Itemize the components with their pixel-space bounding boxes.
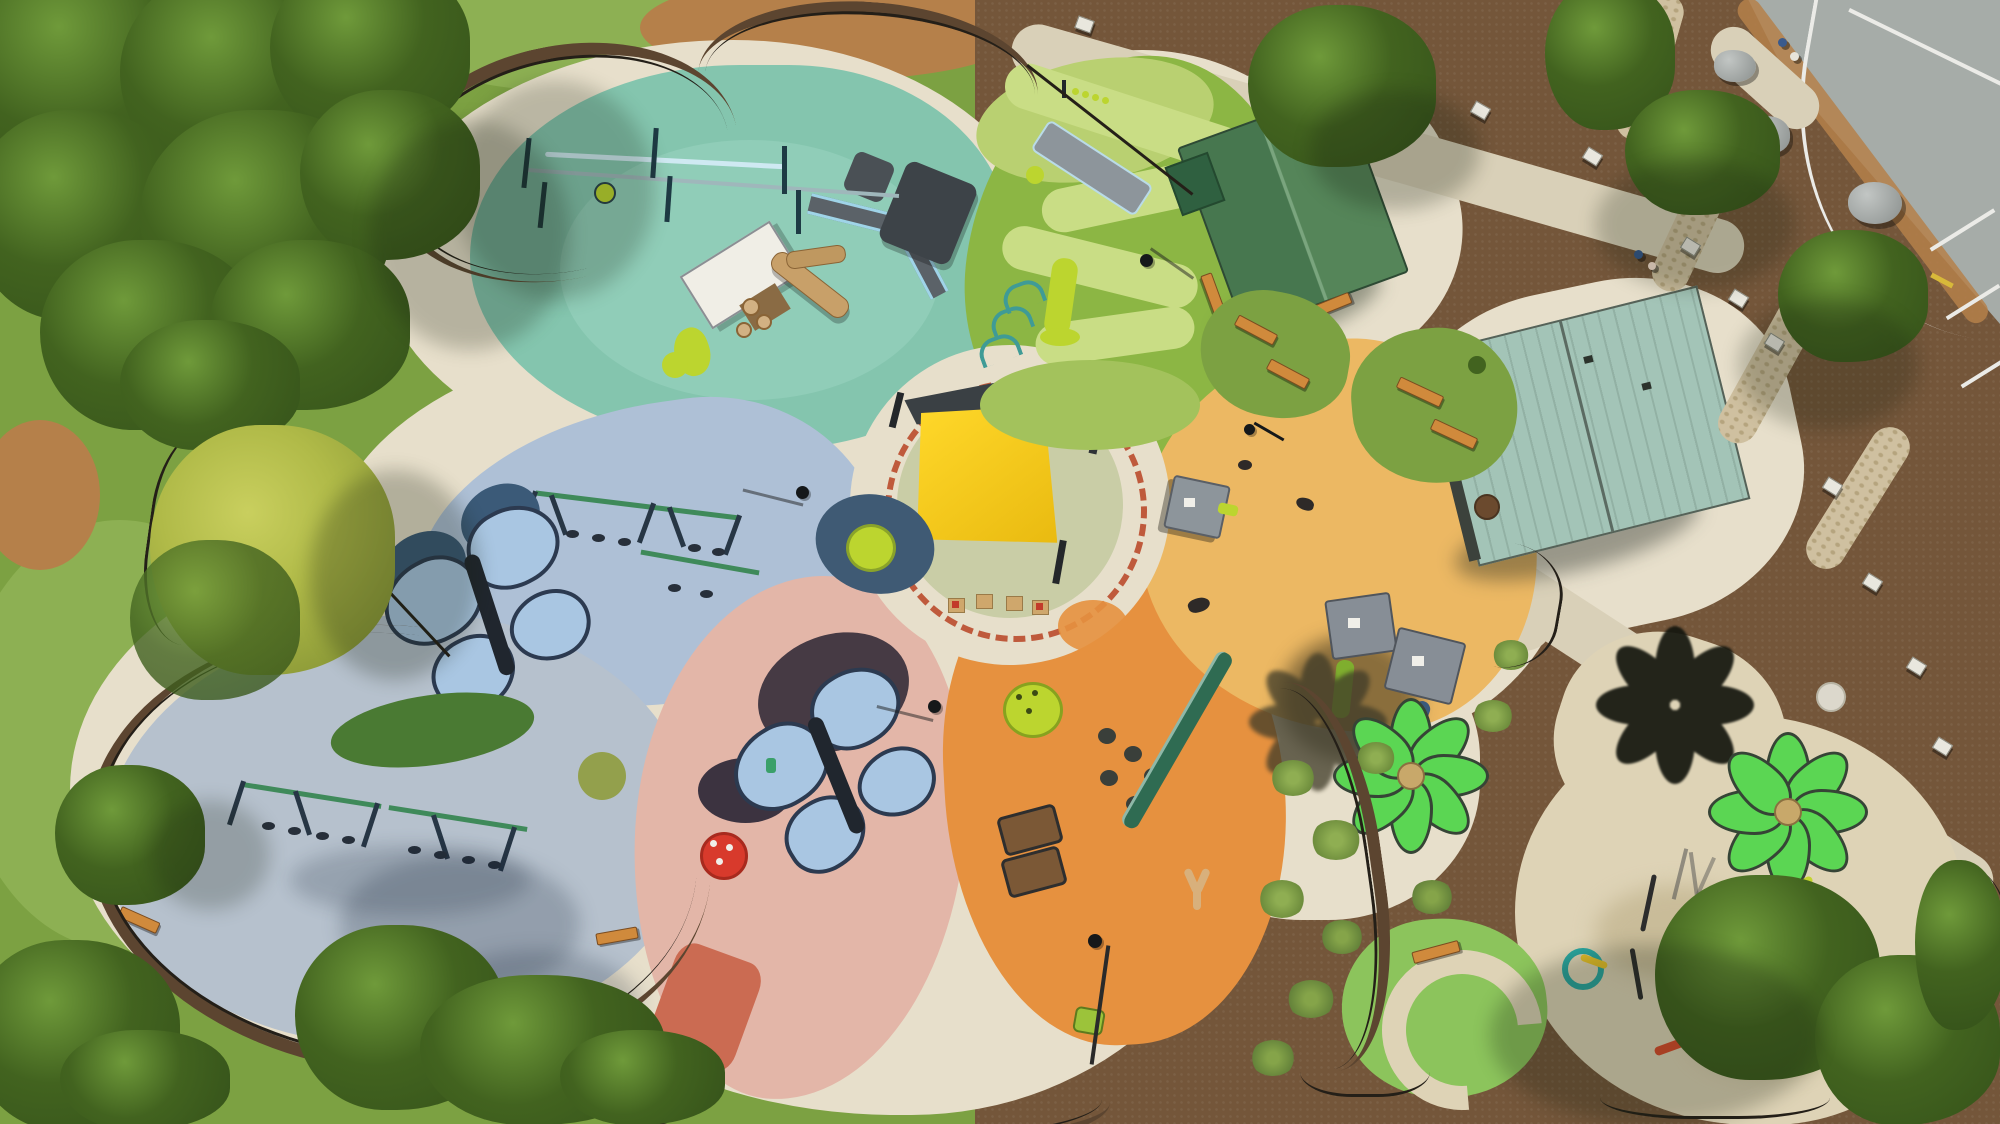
grass-tuft bbox=[1356, 742, 1396, 774]
person bbox=[1778, 38, 1787, 47]
zipline-post bbox=[782, 146, 787, 194]
small-figure bbox=[766, 758, 776, 773]
tree bbox=[560, 1030, 725, 1124]
ball bbox=[1092, 94, 1099, 101]
log-stump bbox=[742, 298, 760, 316]
tree-canopy-shadow bbox=[1595, 160, 1795, 290]
flower-center bbox=[1774, 798, 1802, 826]
lime-slide-exit bbox=[1040, 328, 1080, 346]
swing-seat bbox=[700, 590, 713, 598]
ball bbox=[1102, 97, 1109, 104]
sapling bbox=[1468, 356, 1486, 374]
mushroom-dot bbox=[726, 844, 733, 851]
mound-light-lobe bbox=[980, 360, 1200, 450]
ball bbox=[1082, 91, 1089, 98]
tree-canopy-shadow bbox=[1738, 300, 1918, 430]
mushroom-dot bbox=[710, 840, 717, 847]
aerial-playground-photo bbox=[0, 0, 2000, 1124]
playhouse-window bbox=[1184, 498, 1195, 507]
grass-tuft bbox=[1472, 700, 1514, 732]
pod-stepper bbox=[1100, 770, 1118, 786]
tree bbox=[130, 540, 300, 700]
zipline-post bbox=[796, 190, 801, 234]
tree-canopy-shadow bbox=[310, 470, 480, 680]
mushroom-dot bbox=[716, 858, 723, 865]
person bbox=[1790, 52, 1799, 61]
y-post bbox=[1193, 888, 1201, 910]
round-table bbox=[1474, 494, 1500, 520]
pod-stepper bbox=[1124, 746, 1142, 762]
slide-entry-cap bbox=[1026, 166, 1044, 184]
tree-canopy-shadow bbox=[150, 800, 270, 910]
flower-center bbox=[1397, 762, 1425, 790]
toddler-table-red bbox=[952, 601, 959, 608]
tree-canopy-shadow bbox=[370, 120, 570, 350]
swing-seat bbox=[688, 544, 701, 552]
log-stump bbox=[736, 322, 752, 338]
grass-tuft bbox=[1410, 880, 1454, 914]
playhouse-large bbox=[1324, 592, 1398, 661]
lime-dome-climber bbox=[846, 524, 896, 572]
caterpillar-spot bbox=[1026, 708, 1032, 714]
person bbox=[1634, 250, 1643, 259]
lamp-head bbox=[928, 700, 941, 713]
boulder bbox=[1714, 50, 1756, 82]
lamp-head bbox=[796, 486, 809, 499]
swing-seat bbox=[712, 548, 725, 556]
caterpillar-spot bbox=[1016, 694, 1022, 700]
playhouse-window bbox=[1348, 618, 1360, 628]
log-stump bbox=[756, 314, 772, 330]
tree bbox=[1915, 860, 2000, 1030]
tree-shadow-on-splash bbox=[1490, 945, 1820, 1124]
lamp-head bbox=[1140, 254, 1153, 267]
orange-dot-walkway bbox=[1058, 600, 1128, 652]
swing-seat bbox=[668, 584, 681, 592]
swing-seat bbox=[618, 538, 631, 546]
boulder bbox=[1848, 182, 1902, 224]
caterpillar-spot bbox=[1032, 690, 1038, 696]
pod-stepper bbox=[1098, 728, 1116, 744]
tree bbox=[60, 1030, 230, 1124]
person bbox=[1648, 262, 1656, 270]
toddler-table bbox=[976, 594, 993, 609]
animal-figure bbox=[1238, 460, 1252, 470]
playhouse-window bbox=[1412, 656, 1424, 666]
toddler-table-red bbox=[1036, 603, 1043, 610]
spiral-slide-exit bbox=[662, 352, 688, 378]
utility-disc bbox=[1816, 682, 1846, 712]
toddler-table bbox=[1006, 596, 1023, 611]
swing-seat bbox=[592, 534, 605, 542]
ball bbox=[1072, 88, 1079, 95]
fence bbox=[1300, 1034, 1430, 1097]
tree-canopy-shadow bbox=[1310, 90, 1480, 210]
lamp-post bbox=[1244, 424, 1255, 435]
light-pole-head bbox=[1088, 934, 1102, 948]
